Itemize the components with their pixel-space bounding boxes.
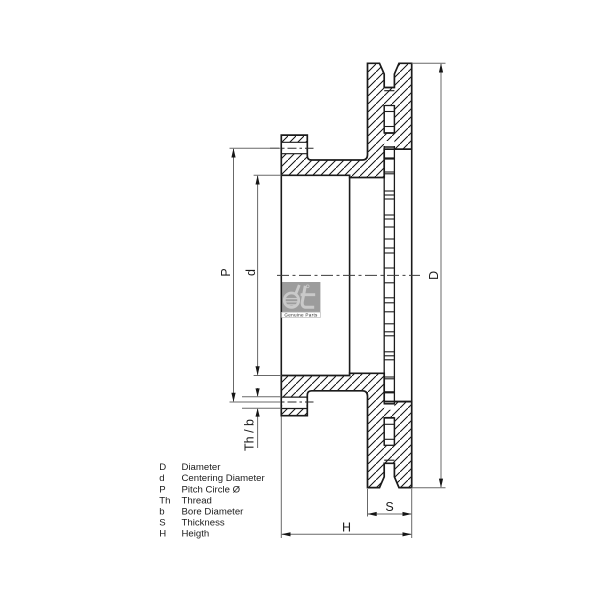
- svg-text:d: d: [159, 473, 164, 484]
- svg-text:Genuine Parts: Genuine Parts: [284, 312, 318, 317]
- svg-text:D: D: [159, 462, 166, 473]
- svg-text:H: H: [342, 521, 351, 535]
- svg-text:b: b: [159, 506, 164, 517]
- svg-text:Heigth: Heigth: [182, 528, 210, 539]
- svg-text:S: S: [385, 500, 393, 514]
- svg-text:S: S: [159, 517, 165, 528]
- svg-text:Centering Diameter: Centering Diameter: [182, 473, 266, 484]
- svg-text:P: P: [159, 484, 165, 495]
- svg-text:d: d: [244, 269, 258, 276]
- svg-text:Pitch Circle Ø: Pitch Circle Ø: [182, 484, 241, 495]
- svg-text:Bore Diameter: Bore Diameter: [182, 506, 245, 517]
- svg-text:Th / b: Th / b: [243, 419, 257, 451]
- svg-text:Thread: Thread: [182, 495, 212, 506]
- svg-text:P: P: [219, 268, 233, 276]
- svg-text:D: D: [427, 271, 441, 280]
- svg-text:Diameter: Diameter: [182, 462, 222, 473]
- svg-text:Thickness: Thickness: [182, 517, 225, 528]
- svg-text:H: H: [159, 528, 166, 539]
- svg-text:Th: Th: [159, 495, 170, 506]
